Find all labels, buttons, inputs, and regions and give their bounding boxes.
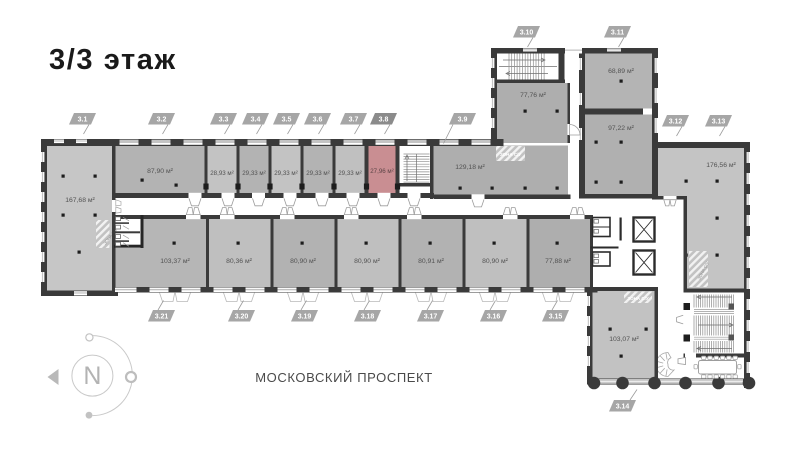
svg-text:80,90 м²: 80,90 м² (290, 258, 317, 265)
svg-text:77,76 м²: 77,76 м² (520, 92, 547, 99)
svg-text:80,90 м²: 80,90 м² (354, 258, 381, 265)
svg-text:29,33 м²: 29,33 м² (242, 170, 266, 177)
svg-text:68,89 м²: 68,89 м² (608, 68, 635, 75)
svg-text:103,07 м²: 103,07 м² (609, 336, 639, 343)
svg-text:80,91 м²: 80,91 м² (418, 258, 445, 265)
svg-text:3.16: 3.16 (487, 314, 501, 321)
svg-text:80,36 м²: 80,36 м² (226, 258, 253, 265)
svg-text:167,68 м²: 167,68 м² (65, 197, 95, 204)
svg-text:3.18: 3.18 (361, 314, 375, 321)
svg-text:3.12: 3.12 (669, 119, 683, 126)
svg-text:3.4: 3.4 (251, 117, 261, 124)
svg-text:29,33 м²: 29,33 м² (338, 170, 362, 177)
svg-text:129,18 м²: 129,18 м² (455, 164, 485, 171)
svg-text:176,56 м²: 176,56 м² (706, 162, 736, 169)
svg-text:3.7: 3.7 (349, 117, 359, 124)
svg-text:3.20: 3.20 (235, 314, 249, 321)
svg-text:3/3 этаж: 3/3 этаж (49, 44, 177, 76)
svg-text:87,90 м²: 87,90 м² (147, 168, 174, 175)
svg-text:3.19: 3.19 (298, 314, 312, 321)
svg-text:103,37 м²: 103,37 м² (160, 258, 190, 265)
svg-text:3.8: 3.8 (379, 117, 389, 124)
svg-text:80,90 м²: 80,90 м² (482, 258, 509, 265)
svg-text:3.3: 3.3 (219, 117, 229, 124)
svg-text:3.9: 3.9 (458, 117, 468, 124)
svg-text:3.17: 3.17 (424, 314, 438, 321)
svg-text:3.2: 3.2 (157, 117, 167, 124)
svg-text:3.21: 3.21 (155, 314, 169, 321)
svg-text:N: N (83, 362, 101, 390)
svg-text:МОСКОВСКИЙ ПРОСПЕКТ: МОСКОВСКИЙ ПРОСПЕКТ (255, 370, 433, 385)
svg-text:3.5: 3.5 (282, 117, 292, 124)
svg-text:77,88 м²: 77,88 м² (545, 258, 572, 265)
svg-text:3.11: 3.11 (611, 30, 624, 37)
svg-text:ЗОНА С/У: ЗОНА С/У (500, 152, 522, 157)
svg-text:29,33 м²: 29,33 м² (274, 170, 298, 177)
svg-text:97,22 м²: 97,22 м² (608, 125, 635, 132)
svg-text:3.13: 3.13 (712, 119, 726, 126)
svg-text:28,93 м²: 28,93 м² (210, 170, 234, 177)
svg-text:29,33 м²: 29,33 м² (306, 170, 330, 177)
svg-text:3.15: 3.15 (549, 314, 563, 321)
svg-text:27,96 м²: 27,96 м² (370, 168, 394, 175)
svg-text:3.1: 3.1 (78, 117, 88, 124)
svg-text:3.6: 3.6 (313, 117, 323, 124)
svg-text:3.14: 3.14 (616, 404, 630, 411)
svg-text:ЗОНА С/У: ЗОНА С/У (627, 296, 649, 301)
svg-text:3.10: 3.10 (520, 30, 534, 37)
